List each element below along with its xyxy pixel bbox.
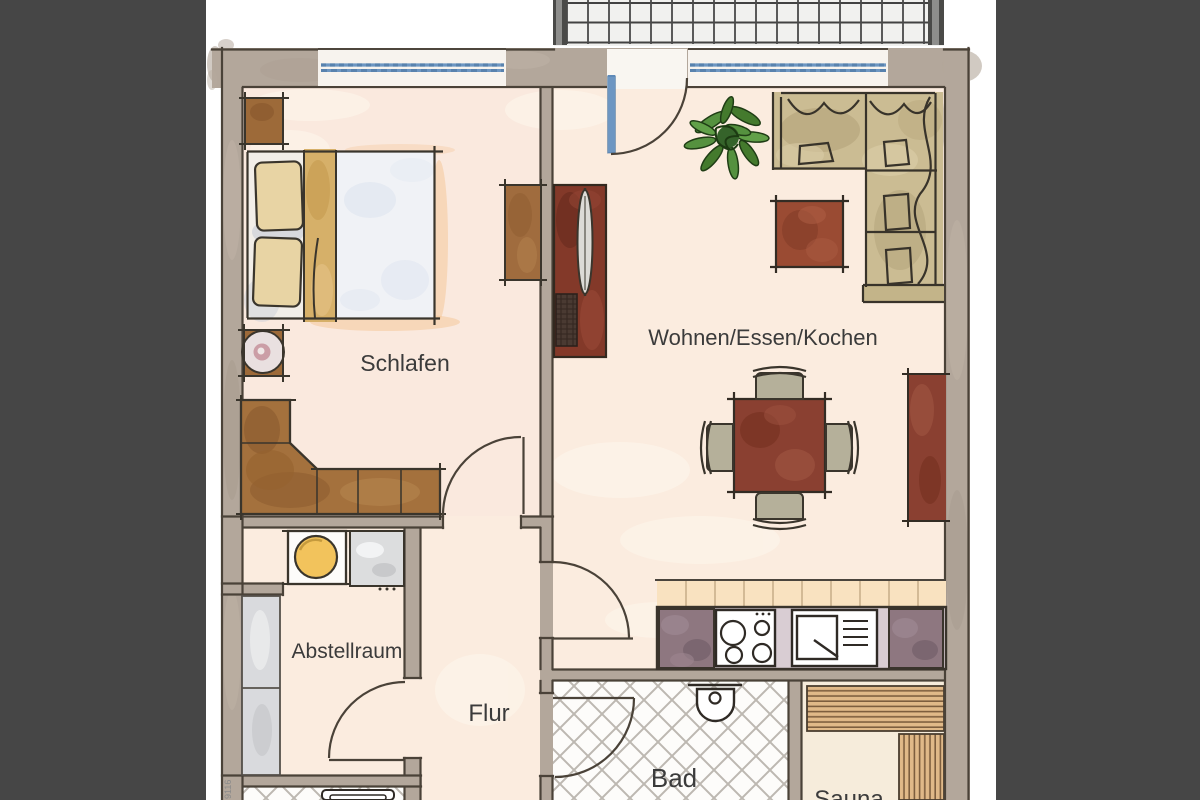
svg-text:Wohnen/Essen/Kochen: Wohnen/Essen/Kochen [648,325,878,350]
svg-text:Sauna: Sauna [814,786,884,800]
svg-text:Bad: Bad [651,763,697,793]
svg-text:Flur: Flur [468,700,509,727]
svg-text:Schlafen: Schlafen [360,350,450,376]
svg-text:Abstellraum: Abstellraum [292,640,403,663]
svg-text:9116: 9116 [223,780,233,799]
